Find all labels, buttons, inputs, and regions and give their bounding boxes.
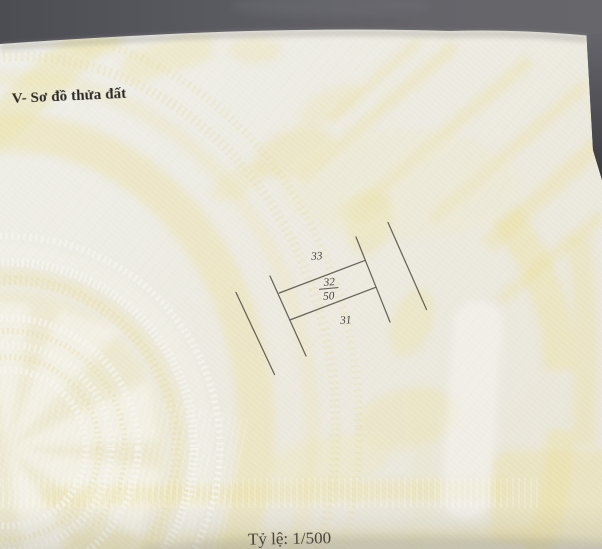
svg-text:Tỷ lệ: 1/500: Tỷ lệ: 1/500 (248, 528, 331, 548)
svg-text:50: 50 (323, 290, 335, 303)
svg-text:32: 32 (322, 276, 335, 289)
svg-text:33: 33 (310, 250, 323, 263)
svg-text:31: 31 (339, 314, 352, 327)
